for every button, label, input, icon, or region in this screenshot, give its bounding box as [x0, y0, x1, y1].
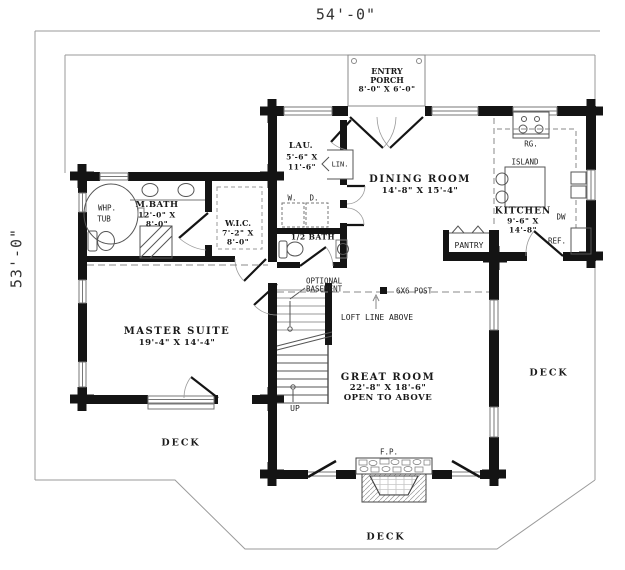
floor-plan: 54'-0" 53'-0" ENTRY PORCH 8'-0" X 6'-0" … — [0, 0, 625, 570]
porch-post-icon — [417, 59, 422, 64]
loft-line-label: LOFT LINE ABOVE — [341, 314, 413, 322]
fireplace-icon — [356, 458, 432, 502]
toilet-icon — [88, 231, 115, 251]
post-6x6-icon — [380, 287, 387, 294]
whirlpool-label: TUB — [97, 215, 111, 223]
room-note-great-room: OPEN TO ABOVE — [344, 394, 432, 403]
room-size-entry-porch: 8'-0" X 6'-0" — [358, 85, 415, 93]
up-label: UP — [290, 405, 300, 413]
fireplace-label: F.P. — [380, 448, 398, 456]
room-label-kitchen: KITCHEN — [495, 208, 551, 217]
shower-icon — [140, 226, 172, 258]
room-label-dining: DINING ROOM — [369, 175, 471, 185]
washer-icon — [282, 203, 304, 227]
room-label-wic: W.I.C. — [225, 219, 251, 227]
deck-label-bottom: DECK — [366, 532, 405, 542]
pantry-shelf-icons — [449, 226, 489, 233]
room-size-dining: 14'-8" X 15'-4" — [382, 187, 459, 196]
dimension-left: 53'-0" — [10, 228, 25, 288]
deck-label-right: DECK — [529, 368, 568, 378]
optional-basement-label: BASEMENT — [306, 285, 342, 293]
room-size-kitchen: 9'-6" X — [507, 217, 539, 225]
whirlpool-label: WHP. — [98, 204, 116, 212]
room-size-laundry: 11'-6" — [288, 163, 316, 171]
room-label-master-bath: M.BATH — [135, 201, 178, 210]
room-size-master-bath: 8'-0" — [146, 220, 168, 228]
linen-label: LIN. — [332, 162, 349, 169]
dryer-icon — [306, 203, 328, 227]
dishwasher-label: DW — [556, 213, 565, 221]
sink-icon — [142, 184, 158, 197]
refrigerator-label: REF. — [548, 237, 566, 245]
room-label-laundry: LAU. — [289, 142, 313, 151]
room-size-master-bath: 12'-0" X — [138, 211, 175, 219]
room-label-pantry: PANTRY — [455, 242, 484, 250]
room-size-wic: 8'-0" — [227, 238, 249, 246]
room-label-entry-porch: ENTRY — [371, 67, 402, 75]
closet-door-chevron-icon — [322, 157, 329, 171]
room-size-kitchen: 14'-8" — [509, 226, 537, 234]
island-label: ISLAND — [511, 158, 538, 166]
sink-icon — [178, 184, 194, 197]
room-size-wic: 7'-2" X — [222, 229, 254, 237]
dryer-label: D. — [309, 194, 318, 202]
toilet-icon — [279, 241, 303, 258]
deck-label-left: DECK — [161, 438, 200, 448]
room-label-master-suite: MASTER SUITE — [124, 327, 231, 337]
room-label-great-room: GREAT ROOM — [341, 373, 435, 383]
dimension-top: 54'-0" — [316, 8, 376, 23]
kitchen-sink-icon — [571, 172, 586, 198]
post-label: 6X6 POST — [396, 287, 432, 295]
staircase — [277, 288, 332, 404]
porch-post-icon — [352, 59, 357, 64]
room-size-master-suite: 19'-4" X 14'-4" — [139, 339, 216, 348]
room-label-half-bath: 1/2 BATH — [291, 233, 335, 241]
island-icon — [496, 167, 545, 207]
room-size-great-room: 22'-8" X 18'-6" — [350, 384, 427, 393]
range-label: RG. — [524, 140, 538, 148]
range-icon — [513, 112, 549, 138]
washer-label: W. — [287, 194, 296, 202]
room-label-entry-porch: PORCH — [370, 76, 404, 84]
room-size-laundry: 5'-6" X — [286, 153, 318, 161]
